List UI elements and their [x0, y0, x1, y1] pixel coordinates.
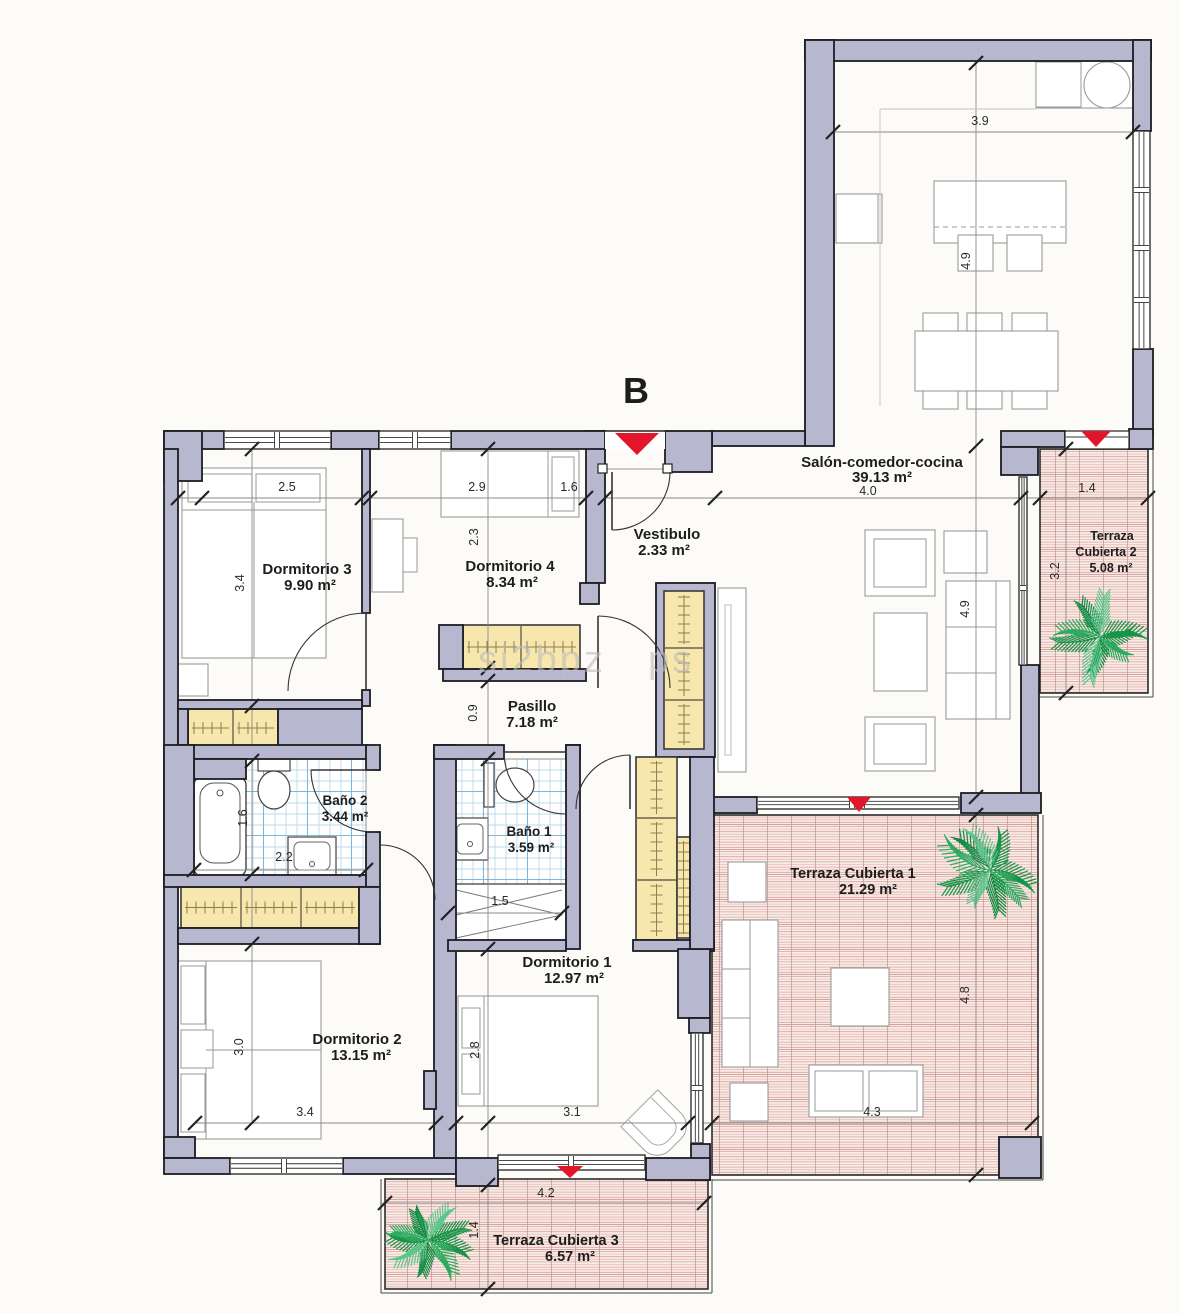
svg-text:8.34 m²: 8.34 m²	[486, 574, 538, 591]
svg-text:ps: ps	[648, 639, 694, 681]
svg-text:3.4: 3.4	[296, 1105, 313, 1119]
svg-text:7.18 m²: 7.18 m²	[506, 714, 558, 731]
svg-text:Pasillo: Pasillo	[508, 698, 556, 715]
svg-text:1.4: 1.4	[467, 1221, 481, 1238]
svg-text:2.9: 2.9	[468, 480, 485, 494]
svg-text:9.90 m²: 9.90 m²	[284, 577, 336, 594]
svg-text:4.0: 4.0	[859, 484, 876, 498]
svg-text:1.4: 1.4	[1078, 481, 1095, 495]
svg-text:si2bpz: si2bpz	[478, 639, 606, 681]
svg-text:13.15 m²: 13.15 m²	[331, 1047, 391, 1064]
svg-text:3.1: 3.1	[563, 1105, 580, 1119]
svg-text:2.33 m²: 2.33 m²	[638, 542, 690, 559]
svg-text:Dormitorio 3: Dormitorio 3	[262, 561, 351, 578]
svg-text:Dormitorio 1: Dormitorio 1	[522, 954, 611, 971]
svg-text:1.6: 1.6	[236, 809, 250, 826]
svg-text:Baño 1: Baño 1	[506, 824, 552, 839]
svg-text:Terraza Cubierta 1: Terraza Cubierta 1	[790, 866, 915, 882]
svg-text:4.9: 4.9	[958, 600, 972, 617]
svg-text:2.2: 2.2	[275, 850, 292, 864]
svg-text:Dormitorio 2: Dormitorio 2	[312, 1031, 401, 1048]
svg-text:2.3: 2.3	[467, 528, 481, 545]
svg-text:3.4: 3.4	[233, 574, 247, 591]
svg-text:39.13 m²: 39.13 m²	[852, 469, 912, 486]
svg-text:4.3: 4.3	[863, 1105, 880, 1119]
svg-text:5.08 m²: 5.08 m²	[1089, 561, 1132, 575]
svg-text:0.9: 0.9	[466, 704, 480, 721]
svg-text:Terraza Cubierta 3: Terraza Cubierta 3	[493, 1233, 618, 1249]
svg-text:Vestibulo: Vestibulo	[634, 526, 701, 543]
svg-text:4.9: 4.9	[959, 252, 973, 269]
svg-text:3.2: 3.2	[1048, 562, 1062, 579]
svg-text:3.9: 3.9	[971, 114, 988, 128]
svg-text:2.8: 2.8	[468, 1041, 482, 1058]
svg-text:Baño 2: Baño 2	[322, 793, 367, 808]
svg-text:4.8: 4.8	[958, 986, 972, 1003]
svg-text:Cubierta 2: Cubierta 2	[1075, 545, 1136, 559]
svg-text:3.59 m²: 3.59 m²	[508, 840, 555, 855]
svg-text:1.5: 1.5	[491, 894, 508, 908]
svg-text:3.44 m²: 3.44 m²	[322, 809, 369, 824]
svg-text:2.5: 2.5	[278, 480, 295, 494]
svg-text:B: B	[623, 370, 649, 411]
svg-text:Terraza: Terraza	[1090, 529, 1135, 543]
svg-text:6.57 m²: 6.57 m²	[545, 1249, 595, 1265]
svg-text:21.29 m²: 21.29 m²	[839, 882, 897, 898]
svg-text:1.6: 1.6	[560, 480, 577, 494]
svg-text:3.0: 3.0	[232, 1038, 246, 1055]
svg-text:12.97 m²: 12.97 m²	[544, 970, 604, 987]
svg-text:4.2: 4.2	[537, 1186, 554, 1200]
svg-text:Dormitorio 4: Dormitorio 4	[465, 558, 555, 575]
